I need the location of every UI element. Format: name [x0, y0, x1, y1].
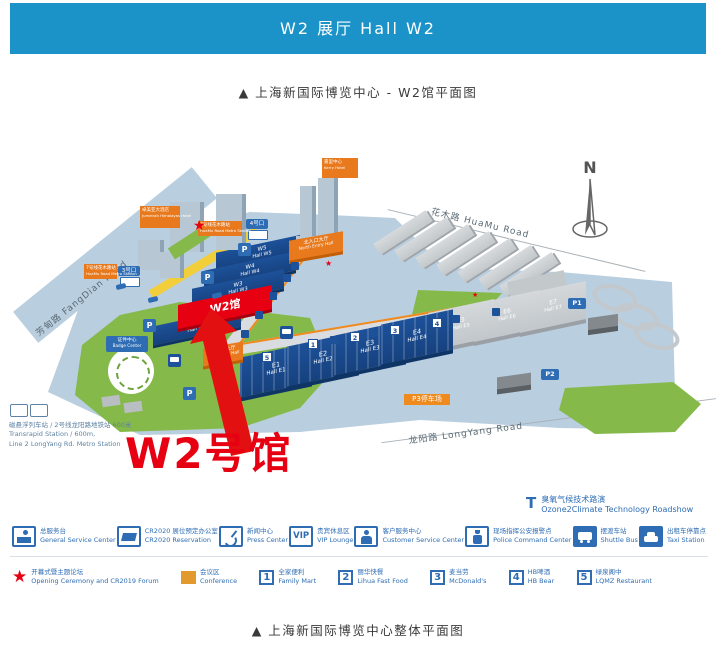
legend-police-command: 现场指挥公安报警点Police Command Center — [465, 526, 571, 547]
gate-marker — [370, 329, 378, 337]
badge-center: 证件中心 Badge Center — [106, 336, 148, 352]
vip-icon: VIP — [289, 526, 313, 547]
taxi-icon — [639, 526, 663, 547]
parking-p1-sign: P1 — [568, 298, 586, 309]
legend-family-mart: 1 全家便利Family Mart — [259, 568, 316, 586]
legend-shuttle-bus: 摆渡车站Shuttle Bus — [573, 526, 638, 547]
page-title: W2 展厅 Hall W2 — [10, 3, 706, 54]
legend-taxi-station: 出租车停靠点Taxi Station — [639, 526, 706, 547]
gate-marker — [291, 262, 299, 270]
kerry-hotel-tower — [300, 186, 316, 236]
gate-marker — [492, 308, 500, 316]
page: W2 展厅 Hall W2 ▲ 上海新国际博览中心 - W2馆平面图 芳甸路 F… — [0, 0, 716, 650]
conference-area-icon — [181, 571, 196, 584]
maglev-icon — [10, 404, 28, 417]
legend-divider — [10, 556, 708, 557]
legend-opening-ceremony: ★ 开幕式暨主题论坛Opening Ceremony and CR2019 Fo… — [12, 568, 159, 586]
star-icon: ★ — [12, 569, 27, 586]
press-center-icon — [219, 526, 243, 547]
marker-2-icon: 2 — [338, 570, 353, 585]
legend-cr2020-reservation: CR2020 展位预定办公室CR2020 Reservation — [117, 526, 218, 547]
road-label-longyang: 龙阳路 LongYang Road — [408, 419, 524, 447]
roadshow-note: T 臭氧气候技术路演 Ozone2Climate Technology Road… — [526, 494, 693, 515]
jumeirah-hotel-label: 卓美亚大酒店 Jumeirah Himalayas Hotel — [140, 206, 180, 228]
event-star: ★ — [193, 219, 206, 233]
marker-4-icon: 4 — [509, 570, 524, 585]
parking-p3-label: P3停车场 — [404, 394, 450, 405]
gate-marker — [452, 315, 460, 323]
legend-lihua-fast-food: 2 丽华快餐Lihua Fast Food — [338, 568, 407, 586]
general-service-icon — [12, 526, 36, 547]
reservation-icon — [117, 526, 141, 547]
legend-lqmz-restaurant: 5 绿泉阁中LQMZ Restaurant — [577, 568, 652, 586]
site-map: 芳甸路 FangDian Road 花木路 HuaMu Road 龙阳路 Lon… — [0, 108, 716, 512]
roadshow-t-icon: T — [526, 494, 536, 515]
legend-conference: 会议区Conference — [181, 568, 237, 586]
police-icon — [465, 526, 489, 547]
parking-icon: P — [201, 271, 214, 284]
legend-row-2: ★ 开幕式暨主题论坛Opening Ceremony and CR2019 Fo… — [12, 562, 652, 592]
parking-icon: P — [238, 243, 251, 256]
lawn-east — [555, 382, 705, 442]
legend-customer-service: 客户服务中心Customer Service Center — [354, 526, 464, 547]
caption-top: ▲ 上海新国际博览中心 - W2馆平面图 — [0, 82, 716, 101]
event-star: ★ — [472, 292, 478, 299]
caption-bottom: ▲ 上海新国际博览中心整体平面图 — [0, 620, 716, 639]
facility-marker: 2 — [350, 332, 360, 342]
kerry-hotel-label: 嘉里中心 Kerry Hotel — [322, 158, 358, 178]
legend-general-service: 总服务台General Service Center — [12, 526, 116, 547]
gate-4-facilities — [248, 230, 268, 240]
metro-icon — [30, 404, 48, 417]
facility-marker: 1 — [308, 339, 318, 349]
shuttle-bus-icon — [573, 526, 597, 547]
parking-p2-sign: P2 — [541, 369, 559, 380]
legend-hb-beer: 4 HB啤酒HB Bear — [509, 568, 555, 586]
facility-marker: 4 — [432, 318, 442, 328]
marker-1-icon: 1 — [259, 570, 274, 585]
compass: N — [566, 158, 614, 258]
parking-icon: P — [143, 319, 156, 332]
w2-callout-text: W2号馆 — [125, 420, 293, 481]
legend-press-center: 新闻中心Press Center — [219, 526, 288, 547]
legend-row-1: 总服务台General Service Center CR2020 展位预定办公… — [12, 518, 706, 554]
marker-5-icon: 5 — [577, 570, 592, 585]
kerry-hotel-tower — [318, 178, 338, 236]
bus-stop-icon — [280, 326, 293, 339]
metro-station-label: 7号线花木路站 HuaMu Road Metro Station — [84, 264, 117, 279]
marker-3-icon: 3 — [430, 570, 445, 585]
facility-marker: 3 — [390, 325, 400, 335]
compass-n-label: N — [566, 158, 614, 177]
compass-needle — [566, 177, 614, 257]
gate-marker — [330, 336, 338, 344]
customer-service-icon — [354, 526, 378, 547]
legend-mcdonalds: 3 麦当劳McDonald's — [430, 568, 486, 586]
gate-marker — [269, 292, 277, 300]
event-star: ★ — [325, 260, 332, 268]
legend-vip-lounge: VIP 贵宾休息区VIP Lounge — [289, 526, 353, 547]
gate-marker — [283, 274, 291, 282]
round-plaza-ring — [116, 356, 150, 390]
